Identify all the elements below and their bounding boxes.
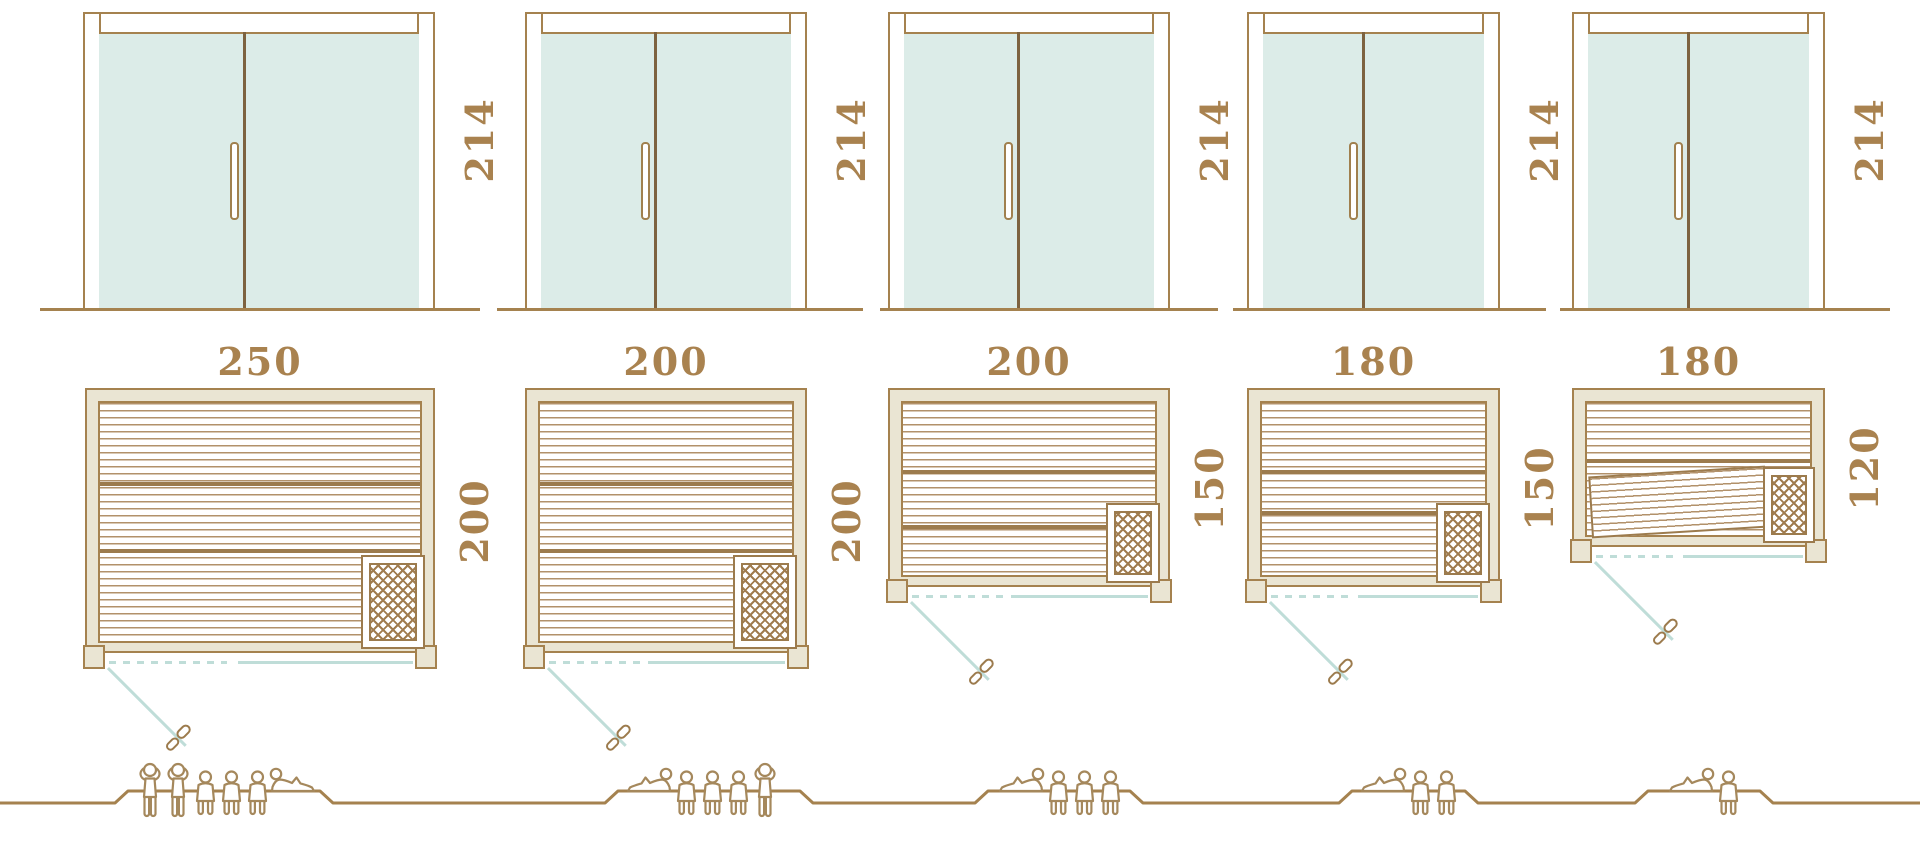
bench-edge-line — [540, 549, 792, 553]
floor-plan — [525, 388, 807, 653]
door-elevation — [1572, 12, 1825, 310]
glass-front-fixed-panel — [1358, 595, 1478, 598]
glass-front-fixed-panel — [1683, 555, 1803, 558]
door-baseline — [40, 308, 480, 311]
bench-edge-line — [100, 549, 420, 553]
door-glass-panels — [541, 32, 791, 310]
door-header-beam — [99, 12, 419, 34]
heater — [733, 555, 797, 649]
door-header-beam — [1588, 12, 1809, 34]
heater — [1763, 467, 1815, 543]
door-height-label: 214 — [1521, 70, 1569, 210]
door-right-post — [1152, 12, 1170, 310]
door-height-label: 214 — [1846, 70, 1894, 210]
door-right-post — [789, 12, 807, 310]
wall-stub-left — [83, 645, 105, 669]
heater-grille — [1114, 511, 1152, 575]
door-header-beam — [541, 12, 791, 34]
door-baseline — [880, 308, 1218, 311]
door-handle — [1349, 142, 1358, 220]
door-height-label: 214 — [1191, 70, 1239, 210]
heater-grille — [1444, 511, 1482, 575]
door-glass-panels — [99, 32, 419, 310]
door-height-label: 214 — [456, 70, 504, 210]
glass-front-fixed-panel — [648, 661, 785, 664]
bench-edge-line — [1262, 470, 1485, 474]
glass-front-door-track — [912, 595, 1003, 598]
door-panel-divider — [654, 32, 657, 310]
seated-person-icon — [1412, 772, 1429, 815]
floor-plan — [1247, 388, 1500, 587]
standing-person-icon — [141, 764, 160, 816]
seated-person-icon — [730, 772, 747, 815]
glass-front-door-track — [1271, 595, 1350, 598]
people-group — [1000, 769, 1119, 814]
door-glass-panels — [904, 32, 1154, 310]
ground-line — [0, 791, 1920, 803]
plan-depth-label: 200 — [823, 451, 871, 591]
seated-person-icon — [1050, 772, 1067, 815]
people-group — [141, 764, 314, 816]
heater-grille — [741, 563, 789, 641]
door-right-post — [1482, 12, 1500, 310]
heater — [1106, 503, 1160, 583]
bench-edge-line — [540, 482, 792, 486]
plan-width-label: 200 — [596, 338, 736, 386]
seated-person-icon — [249, 772, 266, 815]
door-elevation — [1247, 12, 1500, 310]
plan-width-label: 250 — [190, 338, 330, 386]
seated-person-icon — [1076, 772, 1093, 815]
seated-person-icon — [1720, 772, 1737, 815]
door-header-beam — [1263, 12, 1484, 34]
reclining-person-icon — [1670, 769, 1713, 791]
wall-stub-left — [523, 645, 545, 669]
standing-person-icon — [169, 764, 188, 816]
door-handle — [1004, 142, 1013, 220]
door-baseline — [1560, 308, 1890, 311]
door-panel-divider — [1362, 32, 1365, 310]
seated-person-icon — [704, 772, 721, 815]
standing-person-icon — [756, 764, 775, 816]
door-baseline — [1233, 308, 1546, 311]
door-baseline — [497, 308, 863, 311]
door-panel-divider — [1017, 32, 1020, 310]
plan-width-label: 180 — [1629, 338, 1769, 386]
angled-lounger-bench — [1588, 466, 1768, 539]
door-elevation — [888, 12, 1170, 310]
door-handle — [641, 142, 650, 220]
floor-plan — [85, 388, 435, 653]
floor-plan — [888, 388, 1170, 587]
seated-person-icon — [1102, 772, 1119, 815]
door-header-beam — [904, 12, 1154, 34]
reclining-person-icon — [1362, 769, 1405, 791]
reclining-person-icon — [271, 769, 314, 791]
seated-person-icon — [197, 772, 214, 815]
wall-stub-left — [886, 579, 908, 603]
wall-stub-left — [1570, 539, 1592, 563]
door-elevation — [83, 12, 435, 310]
door-glass-panels — [1588, 32, 1809, 310]
seated-person-icon — [1438, 772, 1455, 815]
bench-edge-line — [1587, 459, 1810, 463]
plan-depth-label: 200 — [451, 451, 499, 591]
heater — [1436, 503, 1490, 583]
seated-person-icon — [223, 772, 240, 815]
reclining-person-icon — [1000, 769, 1043, 791]
seated-person-icon — [678, 772, 695, 815]
glass-front-door-track — [549, 661, 640, 664]
plan-depth-label: 150 — [1186, 418, 1234, 558]
reclining-person-icon — [628, 769, 671, 791]
plan-depth-label: 120 — [1841, 398, 1889, 538]
plan-width-label: 200 — [959, 338, 1099, 386]
bench-edge-line — [903, 470, 1155, 474]
floor-plan — [1572, 388, 1825, 547]
plan-width-label: 180 — [1304, 338, 1444, 386]
heater-grille — [369, 563, 417, 641]
people-group — [1670, 769, 1737, 814]
people-group — [628, 764, 774, 816]
door-handle — [1674, 142, 1683, 220]
door-panel-divider — [1687, 32, 1690, 310]
door-handle — [230, 142, 239, 220]
glass-front-fixed-panel — [238, 661, 413, 664]
door-panel-divider — [243, 32, 246, 310]
sauna-size-comparison-diagram: 2142502002142002002142001502141801502141… — [0, 0, 1920, 843]
door-glass-panels — [1263, 32, 1484, 310]
door-elevation — [525, 12, 807, 310]
wall-stub-left — [1245, 579, 1267, 603]
glass-front-door-track — [109, 661, 227, 664]
glass-front-fixed-panel — [1011, 595, 1148, 598]
heater — [361, 555, 425, 649]
bench-edge-line — [100, 482, 420, 486]
door-right-post — [417, 12, 435, 310]
door-height-label: 214 — [828, 70, 876, 210]
heater-grille — [1771, 475, 1807, 535]
door-right-post — [1807, 12, 1825, 310]
glass-front-door-track — [1596, 555, 1675, 558]
plan-depth-label: 150 — [1516, 418, 1564, 558]
people-group — [1362, 769, 1455, 814]
